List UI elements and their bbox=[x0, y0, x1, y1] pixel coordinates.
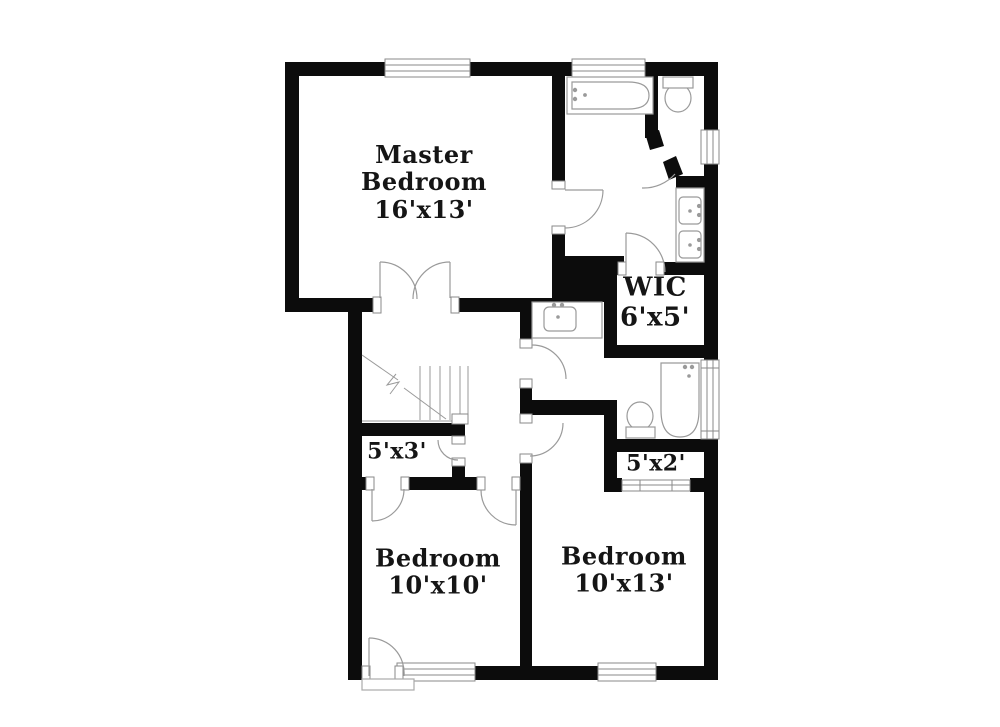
room-name: WIC bbox=[623, 272, 687, 302]
room-label-closet-5x2: 5'x2' bbox=[626, 451, 686, 476]
window-master-top bbox=[385, 59, 470, 77]
staircase bbox=[362, 355, 468, 424]
master-bathtub bbox=[567, 77, 653, 114]
hall-bathtub bbox=[661, 363, 699, 437]
bedroom1-door-right bbox=[481, 490, 516, 525]
room-label-closet-5x3: 5'x3' bbox=[367, 439, 427, 464]
room-label-master-bedroom: Master Bedroom 16'x13' bbox=[361, 141, 487, 223]
room-dimensions: 10'x13' bbox=[574, 569, 673, 598]
room-dimensions: 16'x13' bbox=[374, 195, 473, 224]
master-bath-door bbox=[565, 190, 603, 228]
master-double-door bbox=[380, 262, 450, 299]
floor-plan-page: Master Bedroom 16'x13' WIC 6'x5' 5'x3' 5… bbox=[0, 0, 1000, 727]
room-name: Bedroom bbox=[375, 544, 501, 573]
room-label-wic: WIC 6'x5' bbox=[620, 273, 690, 332]
window-hallbath-right bbox=[701, 360, 719, 439]
room-dimensions: 10'x10' bbox=[388, 571, 487, 600]
room-dimensions: 5'x2' bbox=[626, 450, 686, 476]
room-dimensions: 5'x3' bbox=[367, 438, 427, 464]
bedroom1-door-left bbox=[372, 489, 404, 521]
hall-bath-sink bbox=[532, 302, 602, 338]
floor-plan-drawing bbox=[0, 0, 1000, 727]
window-wc-right bbox=[701, 130, 719, 164]
window-bath-top bbox=[572, 59, 645, 77]
hall-bath-door bbox=[532, 345, 566, 379]
room-name: Bedroom bbox=[561, 542, 687, 571]
bedroom2-door bbox=[530, 423, 563, 456]
room-dimensions: 6'x5' bbox=[620, 302, 690, 332]
room-label-bedroom-10x13: Bedroom 10'x13' bbox=[561, 543, 687, 598]
room-label-bedroom-10x10: Bedroom 10'x10' bbox=[375, 545, 501, 600]
room-name: Master Bedroom bbox=[361, 140, 487, 196]
double-sink-vanity bbox=[676, 188, 704, 262]
window-bedroom2-bottom bbox=[598, 663, 656, 681]
hall-toilet bbox=[626, 402, 655, 438]
window-bedroom1-bottom bbox=[397, 663, 475, 681]
master-toilet bbox=[663, 77, 693, 112]
closet-bifold-door bbox=[622, 480, 690, 491]
